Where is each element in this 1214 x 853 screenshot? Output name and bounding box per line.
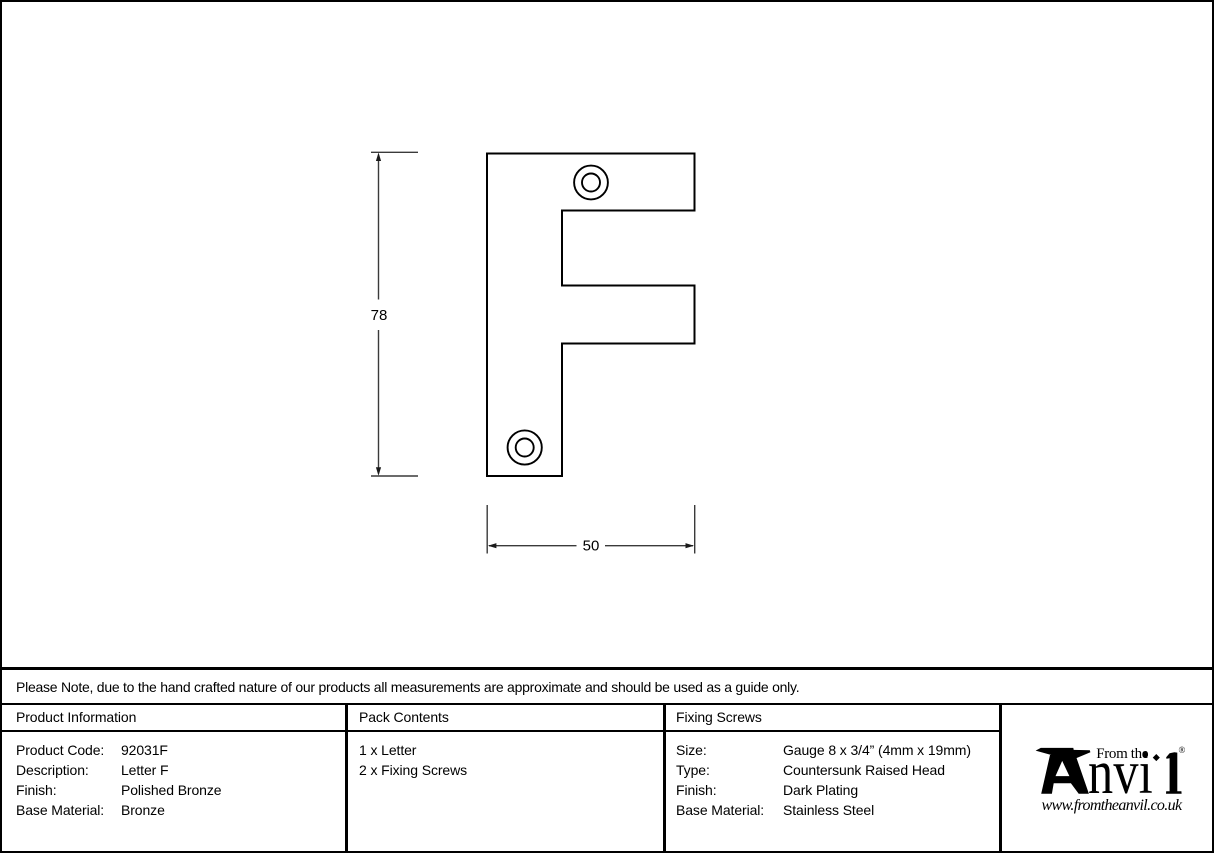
svg-text:78: 78 [371, 307, 388, 324]
svg-text:50: 50 [583, 538, 600, 555]
